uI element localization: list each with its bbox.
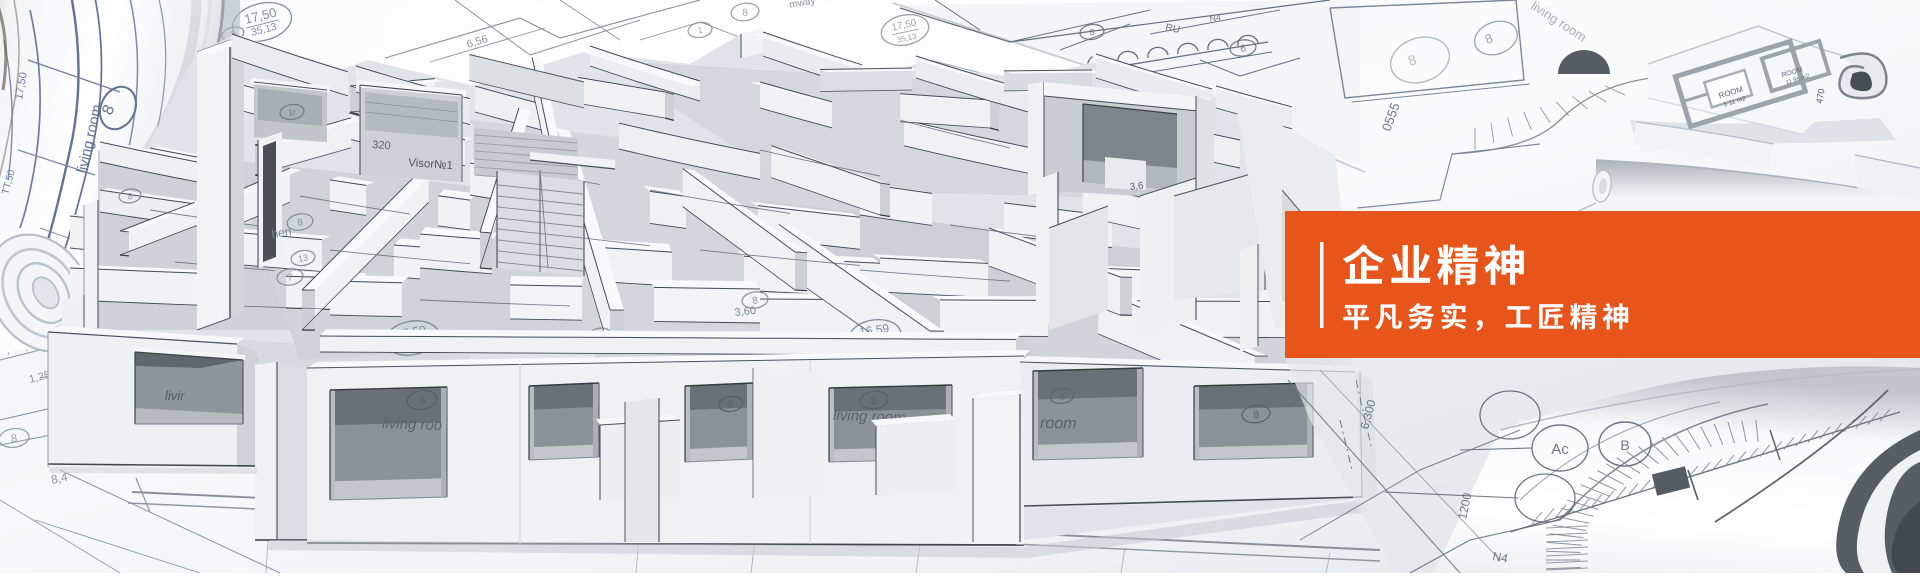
- svg-text:3,60: 3,60: [734, 305, 757, 319]
- svg-text:N4: N4: [1491, 549, 1509, 566]
- svg-text:livir: livir: [165, 388, 185, 403]
- svg-text:living roo: living roo: [382, 415, 443, 434]
- svg-text:hen: hen: [270, 224, 292, 241]
- svg-text:N4: N4: [1209, 12, 1222, 24]
- svg-text:13: 13: [297, 252, 309, 264]
- svg-text:B: B: [1620, 437, 1629, 453]
- svg-text:1r: 1r: [287, 107, 296, 118]
- svg-text:3,6: 3,6: [1129, 181, 1144, 193]
- svg-text:Ac: Ac: [1551, 441, 1569, 458]
- svg-text:320: 320: [372, 139, 391, 152]
- svg-text:room: room: [1040, 415, 1077, 433]
